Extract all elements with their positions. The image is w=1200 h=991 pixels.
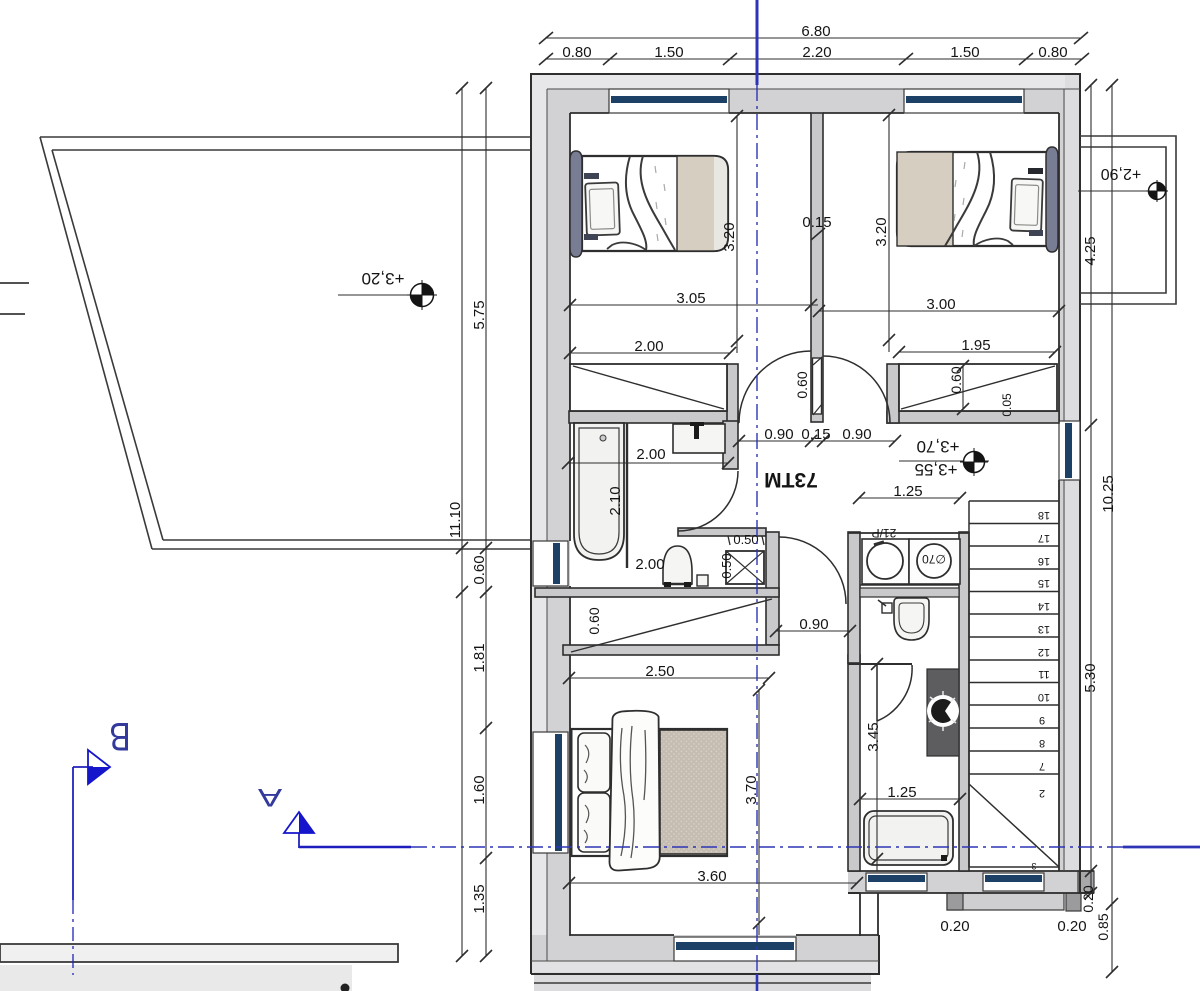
svg-text:3.20: 3.20 xyxy=(721,222,738,251)
svg-text:2.00: 2.00 xyxy=(636,446,665,463)
svg-text:3.45: 3.45 xyxy=(865,722,882,751)
svg-text:∅70: ∅70 xyxy=(922,552,946,566)
svg-text:8: 8 xyxy=(1039,737,1045,749)
svg-text:9: 9 xyxy=(1039,714,1045,726)
svg-text:0.60: 0.60 xyxy=(794,371,810,398)
svg-text:+3,55: +3,55 xyxy=(914,460,957,479)
svg-text:0.20: 0.20 xyxy=(1080,885,1096,912)
svg-text:0.90: 0.90 xyxy=(764,426,793,443)
svg-text:0.15: 0.15 xyxy=(801,426,830,443)
svg-text:3.00: 3.00 xyxy=(926,296,955,313)
svg-text:3: 3 xyxy=(1031,861,1036,871)
svg-text:0.90: 0.90 xyxy=(799,616,828,633)
svg-text:2: 2 xyxy=(1039,787,1045,799)
svg-text:1.25: 1.25 xyxy=(887,784,916,801)
svg-text:15: 15 xyxy=(1038,577,1050,589)
svg-text:5.75: 5.75 xyxy=(471,300,488,329)
svg-text:4.25: 4.25 xyxy=(1082,236,1099,265)
svg-text:+3,20: +3,20 xyxy=(361,269,404,288)
svg-text:0.50: 0.50 xyxy=(733,532,758,547)
svg-text:0.20: 0.20 xyxy=(940,918,969,935)
svg-text:6.80: 6.80 xyxy=(801,23,830,40)
svg-text:0.15: 0.15 xyxy=(802,214,831,231)
svg-text:1.95: 1.95 xyxy=(961,337,990,354)
svg-text:1.25: 1.25 xyxy=(893,483,922,500)
svg-text:0.60: 0.60 xyxy=(471,555,488,584)
svg-text:2.00: 2.00 xyxy=(634,338,663,355)
svg-text:0.20: 0.20 xyxy=(1057,918,1086,935)
svg-text:B: B xyxy=(109,714,130,759)
svg-text:3.20: 3.20 xyxy=(873,217,890,246)
svg-text:17: 17 xyxy=(1038,532,1050,544)
svg-text:0.50: 0.50 xyxy=(719,553,734,578)
svg-text:5.30: 5.30 xyxy=(1082,663,1099,692)
svg-text:0.60: 0.60 xyxy=(948,366,964,393)
svg-text:0.60: 0.60 xyxy=(586,607,602,634)
svg-text:0.90: 0.90 xyxy=(842,426,871,443)
svg-text:2.10: 2.10 xyxy=(607,486,624,515)
svg-text:10.25: 10.25 xyxy=(1100,475,1117,513)
svg-text:+3,70: +3,70 xyxy=(916,437,959,456)
svg-text:73TM: 73TM xyxy=(764,468,818,491)
svg-text:11.10: 11.10 xyxy=(447,502,464,538)
svg-text:13: 13 xyxy=(1038,623,1050,635)
svg-text:1.60: 1.60 xyxy=(471,775,488,804)
svg-text:7: 7 xyxy=(1039,760,1045,772)
svg-text:3.05: 3.05 xyxy=(676,290,705,307)
svg-text:A: A xyxy=(258,783,282,811)
svg-text:1.35: 1.35 xyxy=(471,884,488,913)
svg-text:0.05: 0.05 xyxy=(1000,393,1014,417)
svg-text:1.50: 1.50 xyxy=(654,44,683,61)
svg-text:0.85: 0.85 xyxy=(1095,913,1111,940)
svg-text:10: 10 xyxy=(1038,691,1050,703)
svg-text:18: 18 xyxy=(1038,509,1050,521)
svg-text:0.80: 0.80 xyxy=(562,44,591,61)
svg-text:+2,90: +2,90 xyxy=(1101,165,1142,182)
svg-text:1.50: 1.50 xyxy=(950,44,979,61)
svg-text:0.80: 0.80 xyxy=(1038,44,1067,61)
svg-text:2.20: 2.20 xyxy=(802,44,831,61)
svg-text:11: 11 xyxy=(1038,668,1049,680)
svg-text:2.50: 2.50 xyxy=(645,663,674,680)
svg-text:1.81: 1.81 xyxy=(471,643,488,672)
svg-text:21/P: 21/P xyxy=(872,526,897,540)
svg-text:12: 12 xyxy=(1038,646,1050,658)
svg-text:16: 16 xyxy=(1038,555,1050,567)
svg-text:3.60: 3.60 xyxy=(697,868,726,885)
svg-text:2.00: 2.00 xyxy=(635,556,664,573)
svg-text:14: 14 xyxy=(1038,600,1050,612)
